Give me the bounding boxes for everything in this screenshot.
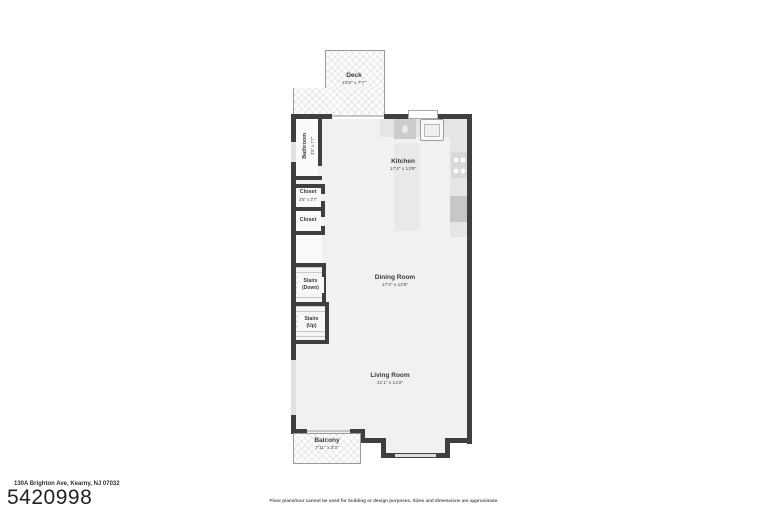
window	[408, 110, 438, 119]
room-dims: 21'1" x 14'2"	[360, 381, 420, 387]
window	[291, 360, 296, 415]
room-dims: 3'5" x 7'7"	[310, 116, 315, 176]
room-dims: 3'5" x 3'7"	[294, 197, 322, 202]
wall-segment	[291, 231, 325, 235]
deck-label: Deck 10'8" x 7'7"	[326, 72, 382, 88]
balcony-door-opening	[307, 430, 350, 432]
kitchen-label: Kitchen 17'4" x 13'9"	[373, 158, 433, 174]
dishwasher-glyph	[402, 125, 408, 133]
wall-segment	[445, 438, 472, 443]
living-room-label: Living Room 21'1" x 14'2"	[360, 372, 420, 388]
closet1-label: Closet 3'5" x 3'7"	[294, 189, 322, 203]
sink-icon	[420, 119, 444, 141]
hallway-area	[296, 235, 322, 263]
room-dims: 17'4" x 12'8"	[365, 283, 425, 289]
room-name: Dining Room	[365, 274, 425, 282]
sink-basin	[424, 124, 440, 137]
room-name: Closet	[294, 217, 322, 224]
disclaimer-text: Floor plans/tour cannot be used for buil…	[0, 498, 768, 503]
room-name: Closet	[294, 189, 322, 196]
stairs-up-label: Stairs (Up)	[298, 315, 325, 331]
room-name: Stairs	[299, 316, 324, 323]
cooktop-icon	[451, 152, 467, 178]
bathroom-label: Bathroom 3'5" x 7'7"	[302, 116, 316, 176]
room-name: Stairs	[298, 278, 323, 285]
wall-segment	[291, 340, 329, 344]
balcony-label: Balcony 7'11" x 3'3"	[297, 437, 357, 453]
wall-segment	[291, 207, 325, 211]
room-name: Living Room	[360, 372, 420, 380]
floor-plan: Deck 10'8" x 7'7"	[0, 0, 768, 512]
room-dims: 10'8" x 7'7"	[326, 81, 382, 87]
deck-door-opening	[332, 115, 384, 117]
room-name: Kitchen	[373, 158, 433, 166]
window	[291, 142, 296, 162]
dishwasher-icon	[394, 119, 416, 139]
stairs-down-label: Stairs (Down)	[297, 277, 324, 293]
wall-segment	[318, 114, 322, 166]
dining-room-label: Dining Room 17'4" x 12'8"	[365, 274, 425, 290]
refrigerator-icon	[450, 196, 467, 222]
room-name: Deck	[326, 72, 382, 80]
room-sub: (Up)	[299, 323, 324, 330]
wall-segment	[291, 184, 325, 188]
window	[395, 454, 436, 457]
closet2-label: Closet	[294, 217, 322, 224]
floor-bay-extension	[386, 429, 445, 455]
room-name: Bathroom	[302, 116, 309, 176]
room-name: Balcony	[297, 437, 357, 445]
wall-segment	[325, 306, 329, 344]
deck-area-extension	[293, 88, 385, 117]
room-dims: 17'4" x 13'9"	[373, 167, 433, 173]
room-dims: 7'11" x 3'3"	[297, 446, 357, 452]
room-sub: (Down)	[298, 285, 323, 292]
wall-segment	[467, 114, 472, 444]
kitchen-island	[394, 143, 420, 231]
wall-segment	[291, 176, 322, 180]
wall-segment	[291, 114, 296, 142]
